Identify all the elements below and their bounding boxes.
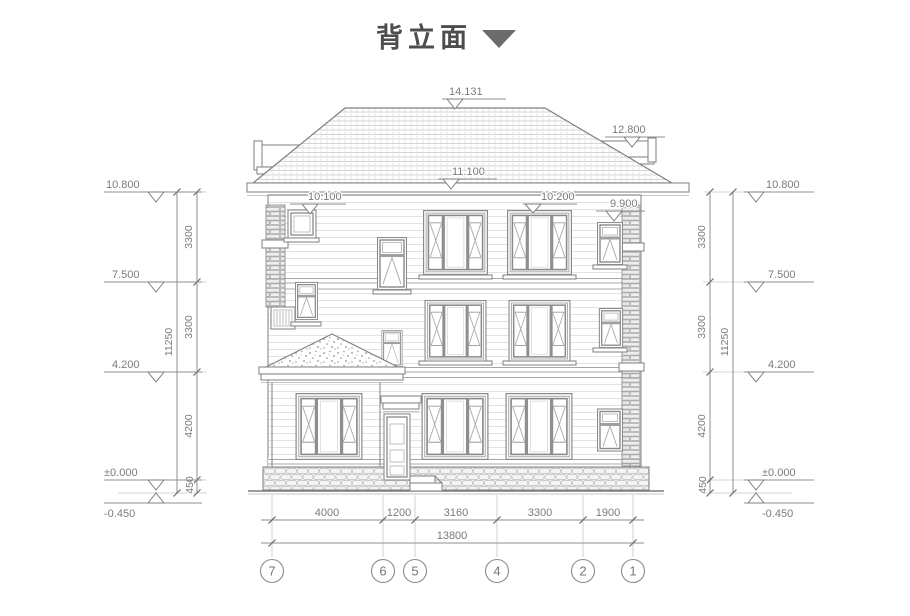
window-2f-small-left [295, 282, 317, 319]
dim-left-seg3: 4200 [183, 414, 195, 438]
window-2f-small-right [599, 308, 622, 347]
window-1f-center [422, 394, 488, 460]
stone-plinth [263, 467, 649, 490]
belt-course-lower [398, 365, 641, 380]
dim-right-total: 11250 [719, 328, 731, 357]
dim-left-seg1: 3300 [183, 225, 195, 249]
dim-right-seg4: 450 [697, 476, 709, 494]
marker-ridge-value: 14.131 [449, 86, 483, 98]
window-2f-large-right [509, 301, 570, 362]
window-3f-narrow [378, 238, 407, 290]
level-right-2: 7.500 [768, 269, 796, 281]
level-right-5: -0.450 [762, 508, 793, 520]
door-canopy [381, 396, 421, 412]
window-1f-right [506, 394, 572, 460]
level-left-2: 7.500 [112, 269, 140, 281]
header: 背立面 [376, 22, 516, 53]
marker-head-right-value: 9.900 [610, 198, 638, 210]
dim-right-seg2: 3300 [696, 315, 708, 339]
grid-bubble-7: 7 [261, 560, 284, 583]
dim-left: 3300 3300 4200 450 11250 10.800 7.500 4.… [104, 179, 207, 520]
dim-bottom: 4000 1200 3160 3300 1900 13800 [261, 495, 644, 557]
grid-bubble-6: 6 [372, 560, 395, 583]
level-markers-right: 10.800 7.500 4.200 ±0.000 -0.450 [744, 179, 814, 520]
dim-left-seg2: 3300 [183, 315, 195, 339]
grid-bubble-2-label: 2 [579, 564, 586, 579]
section-toggle-icon[interactable] [482, 30, 516, 48]
window-3f-large-left [424, 211, 488, 275]
window-1f-porch [296, 394, 362, 460]
main-roof [247, 108, 689, 196]
dim-bottom-seg1: 4000 [315, 507, 339, 519]
grid-bubble-1: 1 [622, 560, 645, 583]
window-3f-large-right [508, 211, 572, 275]
elevation-sheet: 背立面 [0, 0, 910, 616]
window-1f-small-right [598, 409, 623, 451]
elevation-drawing: 背立面 [0, 0, 910, 616]
level-left-5: -0.450 [104, 508, 135, 520]
marker-roof-right-value: 12.800 [612, 124, 646, 136]
level-left-4: ±0.000 [104, 467, 138, 479]
dim-bottom-seg5: 1900 [596, 507, 620, 519]
dim-right-seg3: 4200 [696, 414, 708, 438]
level-right-4: ±0.000 [762, 467, 796, 479]
level-right-3: 4.200 [768, 359, 796, 371]
marker-head-center-value: 10.200 [541, 191, 575, 203]
level-left-3: 4.200 [112, 359, 140, 371]
grid-bubbles: 7 6 5 4 2 1 [261, 560, 645, 583]
door-step [410, 476, 442, 491]
grid-bubble-4-label: 4 [493, 564, 500, 579]
page-title: 背立面 [376, 22, 472, 53]
left-quoin-pilaster [262, 205, 288, 307]
grid-bubble-6-label: 6 [379, 564, 386, 579]
level-left-1: 10.800 [106, 179, 140, 191]
grid-bubble-4: 4 [486, 560, 509, 583]
marker-head-left-value: 10.100 [308, 191, 342, 203]
window-2f-large-left [425, 301, 486, 362]
window-3f-small-right [598, 223, 623, 265]
dim-bottom-total: 13800 [437, 530, 468, 542]
dim-left-total: 11250 [163, 328, 175, 357]
marker-ridge: 14.131 [442, 86, 506, 109]
dim-left-seg4: 450 [184, 476, 196, 494]
dim-right-seg1: 3300 [696, 225, 708, 249]
grid-bubble-2: 2 [572, 560, 595, 583]
grid-bubble-1-label: 1 [629, 564, 636, 579]
grid-bubble-7-label: 7 [268, 564, 275, 579]
window-3f-square [288, 210, 316, 238]
dim-bottom-seg3: 3160 [444, 507, 468, 519]
entry-door [384, 414, 410, 480]
marker-eave-value: 11.100 [452, 166, 485, 178]
dim-bottom-seg4: 3300 [528, 507, 552, 519]
level-right-1: 10.800 [766, 179, 800, 191]
grid-bubble-5-label: 5 [411, 564, 418, 579]
dim-right: 3300 3300 4200 450 11250 10.800 7.500 4.… [696, 179, 814, 520]
dim-bottom-seg2: 1200 [387, 507, 411, 519]
grid-bubble-5: 5 [404, 560, 427, 583]
